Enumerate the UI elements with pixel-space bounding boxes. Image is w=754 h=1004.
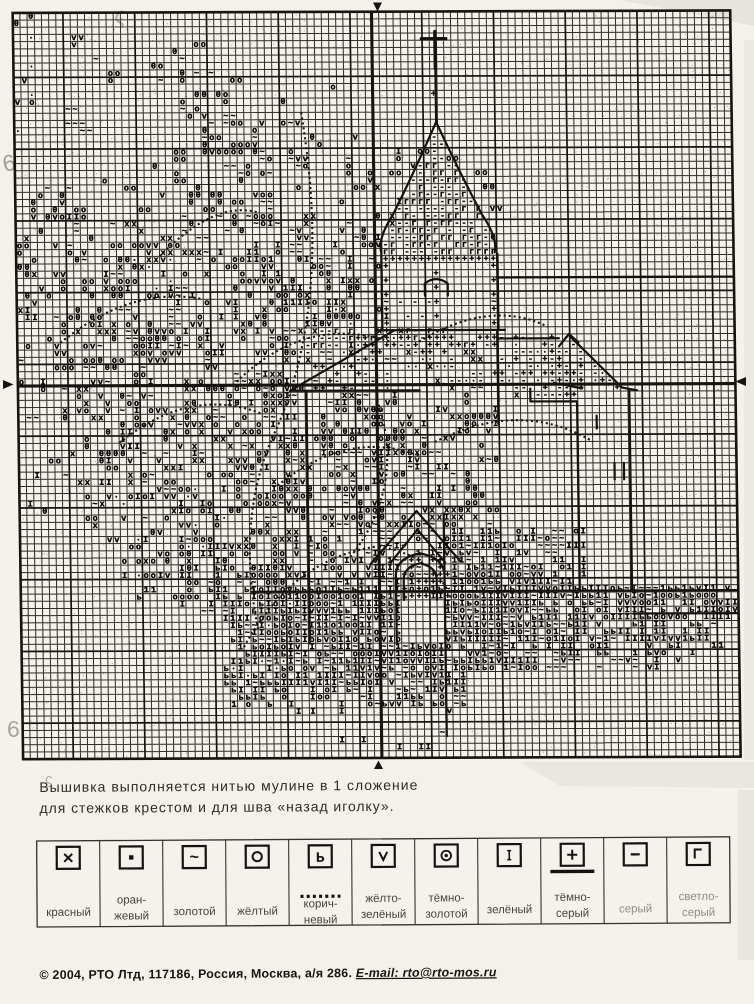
svg-text:красный: красный — [46, 907, 91, 919]
svg-text:0: 0 — [14, 19, 19, 29]
svg-text:оран-: оран- — [117, 894, 147, 906]
svg-text:o: o — [330, 82, 335, 92]
svg-text:6: 6 — [7, 716, 20, 742]
svg-text:серый: серый — [682, 907, 715, 919]
svg-text:серый: серый — [556, 908, 589, 920]
svg-text:светло-: светло- — [679, 891, 719, 903]
svg-text:© 2004, РТО Лтд, 117186, Росси: © 2004, РТО Лтд, 117186, Россия, Москва,… — [39, 965, 496, 982]
svg-text:жевый: жевый — [114, 910, 149, 922]
svg-text:0: 0 — [28, 12, 33, 22]
svg-text:тёмно-: тёмно- — [428, 892, 464, 904]
svg-text:тёмно-: тёмно- — [554, 892, 590, 904]
svg-text:0: 0 — [172, 47, 177, 57]
svg-text:~: ~ — [189, 849, 199, 867]
svg-text:серый: серый — [619, 903, 652, 915]
svg-text:Ь: Ь — [316, 851, 325, 867]
svg-text:золотой: золотой — [425, 908, 467, 920]
svg-text:зелёный: зелёный — [361, 909, 406, 921]
svg-text:золотой: золотой — [173, 906, 215, 918]
svg-text:невый: невый — [304, 914, 338, 926]
svg-text:зелёный: зелёный — [487, 904, 532, 916]
svg-text:корич-: корич- — [303, 898, 337, 910]
svg-text:жёлтый: жёлтый — [237, 906, 278, 918]
svg-text:Вышивка выполняется нитью мули: Вышивка выполняется нитью мулине в 1 сло… — [39, 777, 418, 795]
svg-text:жёлто-: жёлто- — [365, 893, 401, 905]
svg-text:для стежков крестом и для шва: для стежков крестом и для шва «назад иго… — [39, 798, 394, 816]
